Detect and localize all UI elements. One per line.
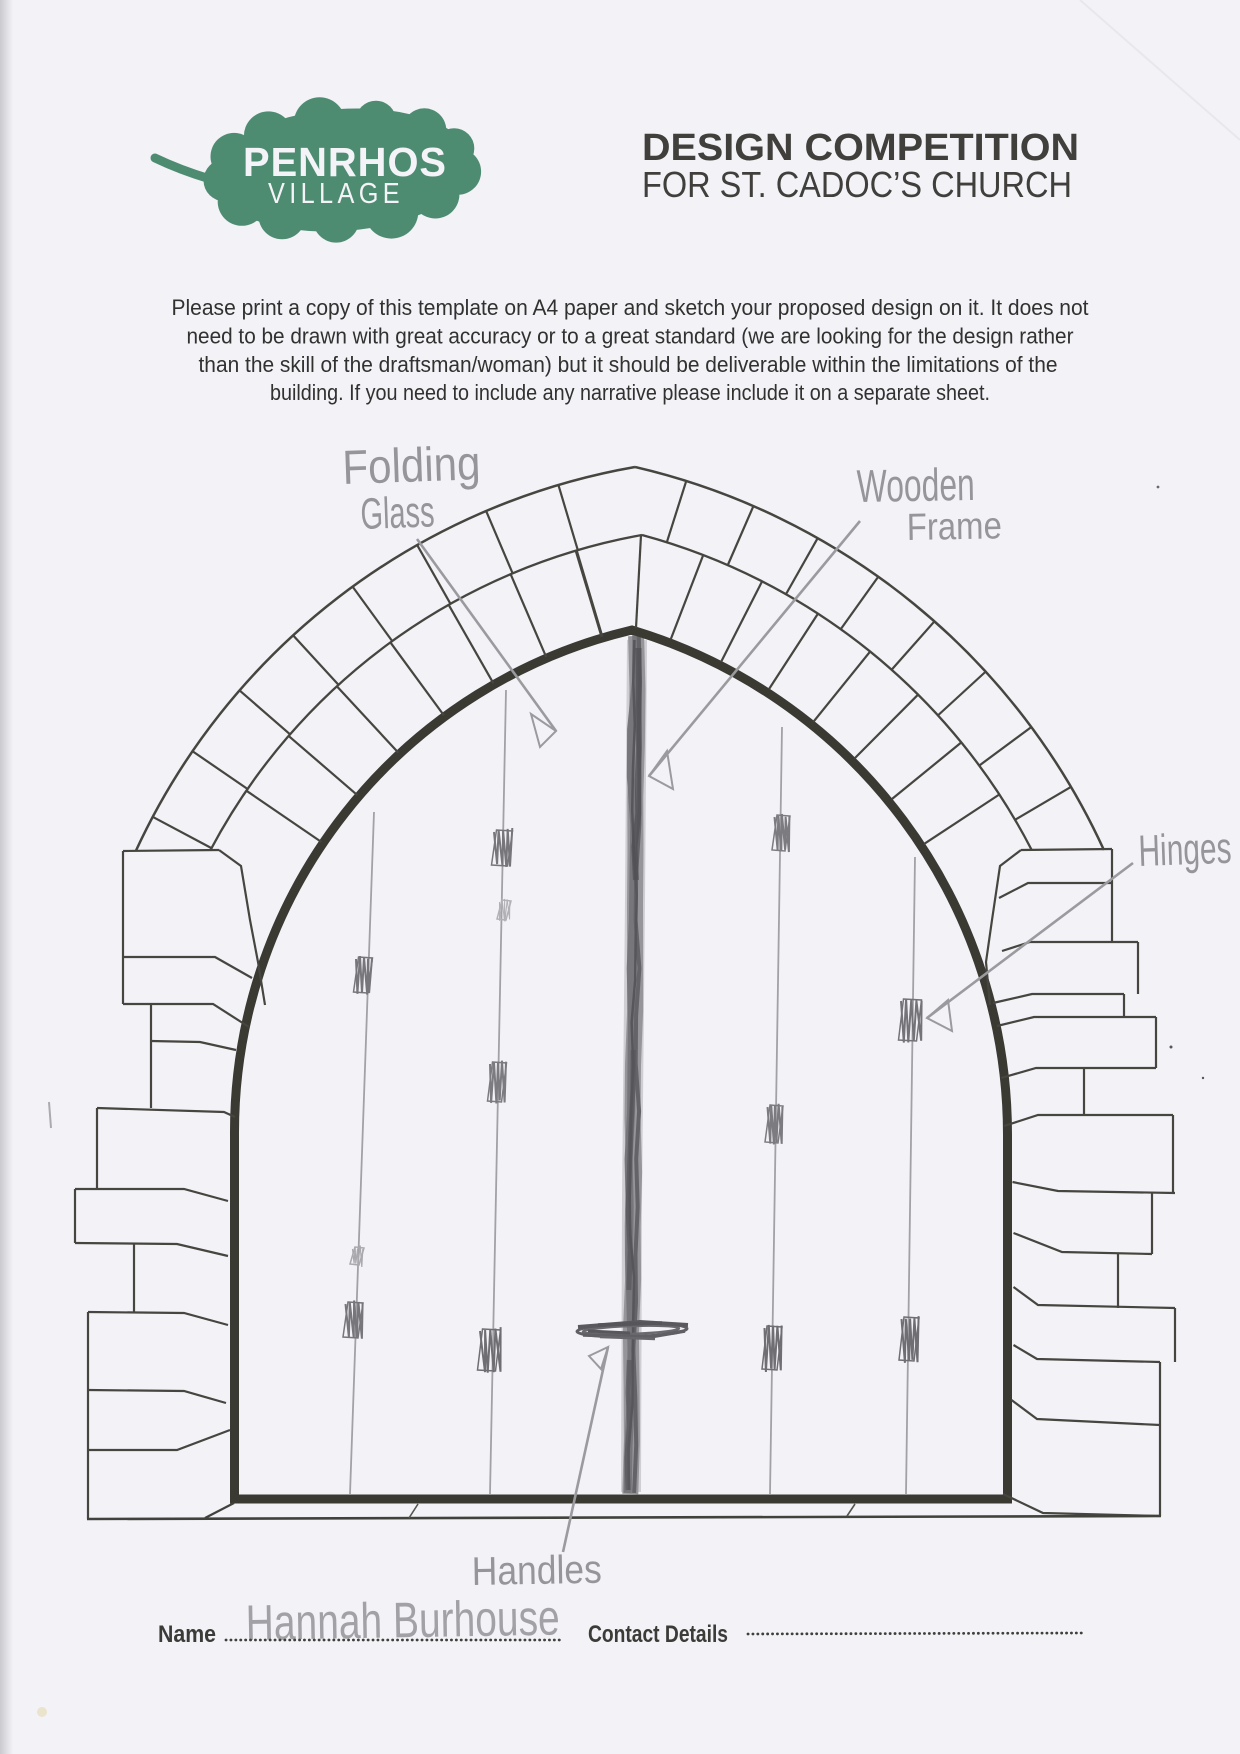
svg-text:Folding: Folding	[342, 437, 482, 495]
svg-text:than the skill of the draftsma: than the skill of the draftsman/woman) b…	[199, 352, 1058, 377]
svg-text:Handles: Handles	[471, 1548, 602, 1594]
svg-text:Wooden: Wooden	[856, 458, 975, 512]
svg-text:Glass: Glass	[360, 487, 436, 539]
svg-text:Hinges: Hinges	[1138, 824, 1233, 876]
svg-text:need to be drawn with great ac: need to be drawn with great accuracy or …	[187, 324, 1074, 349]
svg-text:building. If you need to inclu: building. If you need to include any nar…	[270, 380, 990, 405]
svg-text:DESIGN COMPETITION: DESIGN COMPETITION	[642, 127, 1079, 169]
svg-text:Name: Name	[158, 1621, 216, 1648]
svg-text:Please print a copy of this te: Please print a copy of this template on …	[172, 295, 1090, 320]
svg-text:VILLAGE: VILLAGE	[268, 178, 404, 210]
svg-text:Hannah Burhouse: Hannah Burhouse	[245, 1590, 560, 1651]
svg-text:Frame: Frame	[906, 505, 1002, 549]
svg-text:Contact Details: Contact Details	[588, 1621, 728, 1648]
svg-text:FOR ST. CADOC’S CHURCH: FOR ST. CADOC’S CHURCH	[642, 164, 1072, 205]
